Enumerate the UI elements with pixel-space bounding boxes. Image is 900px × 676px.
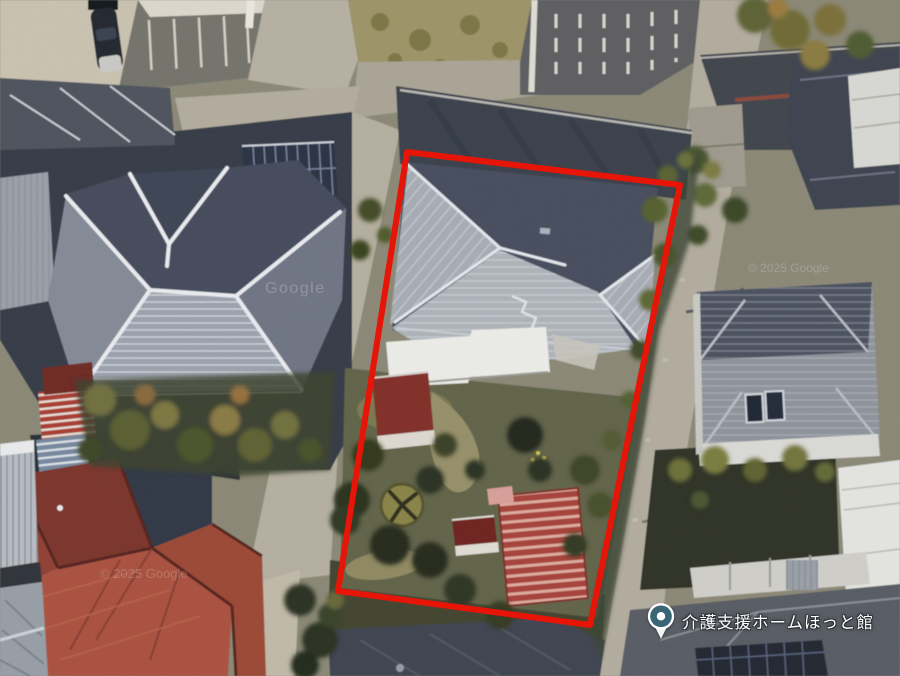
- copyright-watermark-bottom-left: © 2025 Google: [100, 566, 188, 581]
- poi-label[interactable]: 介護支援ホームほっと館: [645, 601, 874, 641]
- location-pin-icon: [645, 601, 677, 641]
- satellite-imagery: Google © 2025 Google © 2025 Google: [0, 0, 900, 676]
- poi-label-text: 介護支援ホームほっと館: [682, 609, 874, 633]
- map-canvas[interactable]: Google © 2025 Google © 2025 Google 介護支援ホ…: [0, 0, 900, 676]
- google-watermark: Google: [265, 280, 326, 297]
- copyright-watermark-top-right: © 2025 Google: [748, 261, 829, 275]
